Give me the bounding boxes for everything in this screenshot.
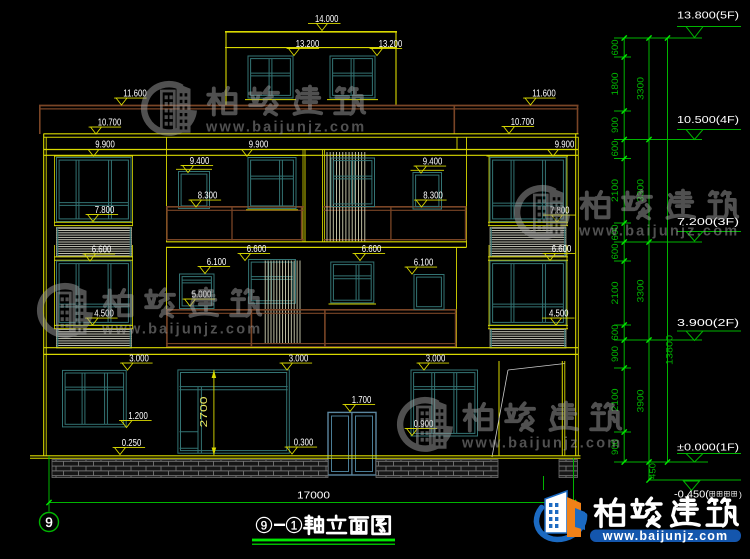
svg-text:2100: 2100 — [610, 179, 620, 202]
svg-text:www.baijunjz.com: www.baijunjz.com — [602, 529, 728, 543]
svg-text:1800: 1800 — [610, 73, 620, 96]
svg-text:3300: 3300 — [636, 77, 646, 100]
svg-text:450: 450 — [648, 463, 658, 479]
svg-text:3900: 3900 — [636, 390, 646, 413]
svg-text:1: 1 — [291, 520, 297, 532]
svg-text:3.900(2F): 3.900(2F) — [677, 317, 739, 329]
svg-text:±0.000(1F): ±0.000(1F) — [677, 442, 739, 454]
svg-text:9: 9 — [261, 520, 267, 532]
svg-text:13800: 13800 — [665, 335, 675, 365]
svg-text:www.baijunjz.com: www.baijunjz.com — [205, 120, 366, 136]
svg-text:13.800(5F): 13.800(5F) — [677, 10, 739, 22]
svg-text:3300: 3300 — [636, 280, 646, 303]
svg-text:600: 600 — [610, 141, 620, 157]
svg-text:2100: 2100 — [610, 282, 620, 305]
svg-text:www.baijunjz.com: www.baijunjz.com — [578, 224, 739, 240]
svg-text:): ) — [739, 490, 742, 500]
svg-text:900: 900 — [610, 346, 620, 362]
svg-text:900: 900 — [610, 117, 620, 133]
svg-text:9: 9 — [45, 515, 53, 530]
svg-text:10.500(4F): 10.500(4F) — [677, 114, 739, 126]
svg-text:600: 600 — [610, 244, 620, 260]
svg-text:17000: 17000 — [297, 489, 330, 501]
svg-text:www.baijunjz.com: www.baijunjz.com — [461, 436, 622, 452]
svg-text:600: 600 — [610, 325, 620, 341]
svg-text:600: 600 — [610, 40, 620, 56]
svg-text:www.baijunjz.com: www.baijunjz.com — [101, 322, 262, 338]
svg-text:2700: 2700 — [198, 396, 210, 427]
